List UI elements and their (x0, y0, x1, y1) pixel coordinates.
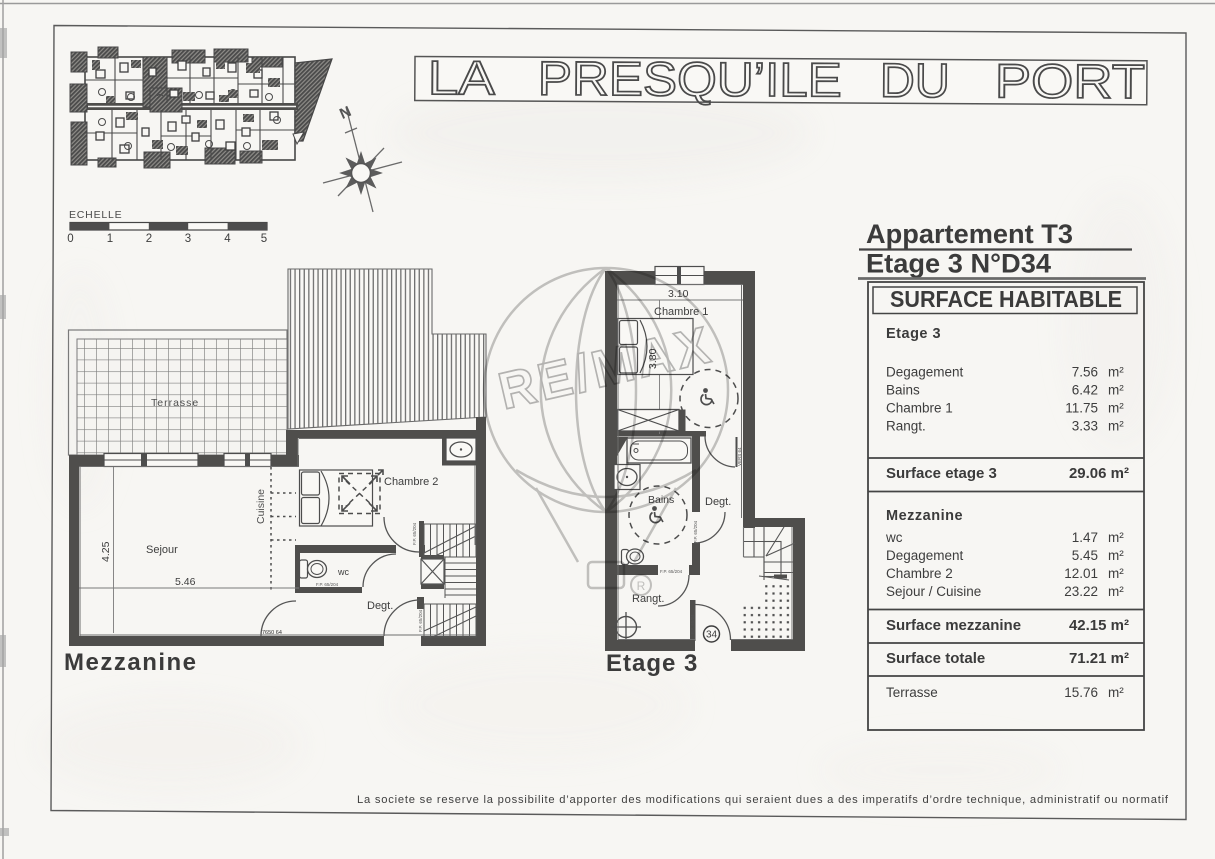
svg-text:m²: m² (1108, 530, 1124, 545)
svg-text:Terrasse: Terrasse (151, 397, 199, 409)
svg-text:3: 3 (185, 233, 191, 245)
svg-text:Degagement: Degagement (886, 548, 964, 563)
svg-text:11.75: 11.75 (1065, 401, 1098, 416)
svg-text:F.P. 65/04: F.P. 65/04 (690, 614, 695, 634)
svg-text:Bains: Bains (886, 383, 920, 398)
svg-text:Surface mezzanine: Surface mezzanine (886, 617, 1021, 634)
svg-text:Terrasse: Terrasse (886, 685, 938, 700)
svg-text:2: 2 (146, 233, 152, 245)
svg-text:Mezzanine: Mezzanine (886, 508, 963, 524)
svg-text:34: 34 (706, 630, 718, 641)
svg-text:wc: wc (337, 567, 349, 577)
svg-text:m²: m² (1108, 383, 1124, 398)
svg-text:5.45: 5.45 (1072, 548, 1098, 563)
svg-text:Surface etage 3: Surface etage 3 (886, 465, 997, 482)
svg-text:wc: wc (885, 530, 903, 545)
svg-text:R: R (637, 579, 646, 593)
svg-text:Surface totale: Surface totale (886, 650, 985, 667)
svg-text:71.21 m²: 71.21 m² (1069, 650, 1129, 667)
svg-text:SURFACE HABITABLE: SURFACE HABITABLE (890, 286, 1122, 312)
svg-text:LA: LA (428, 52, 495, 105)
svg-text:23.22: 23.22 (1064, 584, 1098, 599)
svg-text:Etage 3: Etage 3 (886, 326, 941, 342)
svg-text:Degagement: Degagement (886, 365, 964, 380)
svg-text:3.33: 3.33 (1072, 419, 1098, 434)
svg-text:Rangt.: Rangt. (886, 419, 926, 434)
svg-text:1: 1 (107, 233, 113, 245)
svg-text:DU: DU (880, 55, 950, 108)
svg-text:Chambre 2: Chambre 2 (384, 476, 438, 488)
svg-text:F.P. 65/204: F.P. 65/204 (693, 520, 698, 543)
svg-text:Sejour: Sejour (146, 544, 178, 556)
svg-text:ECHELLE: ECHELLE (69, 209, 122, 221)
svg-text:Sejour / Cuisine: Sejour / Cuisine (886, 584, 981, 599)
svg-text:5: 5 (261, 233, 267, 245)
svg-text:6.42: 6.42 (1072, 383, 1098, 398)
svg-text:Appartement T3: Appartement T3 (866, 219, 1073, 249)
svg-text:4: 4 (224, 233, 231, 245)
svg-text:Chambre 2: Chambre 2 (886, 566, 953, 581)
svg-text:Cuisine: Cuisine (255, 489, 267, 524)
svg-text:Chambre 1: Chambre 1 (886, 401, 953, 416)
svg-text:F.P. 65/204: F.P. 65/204 (412, 522, 417, 545)
svg-text:42.15 m²: 42.15 m² (1069, 617, 1129, 634)
svg-text:12.01: 12.01 (1064, 566, 1098, 581)
svg-text:m²: m² (1108, 401, 1124, 416)
svg-text:m²: m² (1108, 365, 1124, 380)
svg-text:m²: m² (1108, 685, 1124, 700)
svg-text:F.P. 65/204: F.P. 65/204 (660, 569, 683, 574)
svg-text:7.56: 7.56 (1072, 365, 1098, 380)
svg-text:15.76: 15.76 (1064, 685, 1098, 700)
svg-text:1.47: 1.47 (1072, 530, 1098, 545)
svg-text:Etage 3 N°D34: Etage 3 N°D34 (866, 249, 1051, 279)
svg-text:m²: m² (1108, 566, 1124, 581)
svg-text:m²: m² (1108, 548, 1124, 563)
svg-text:5.46: 5.46 (175, 576, 196, 588)
svg-text:PRESQU’ILE: PRESQU’ILE (538, 53, 842, 108)
svg-text:29.06 m²: 29.06 m² (1069, 465, 1129, 482)
svg-text:F.P. 65/204: F.P. 65/204 (316, 582, 339, 587)
svg-text:Degt.: Degt. (705, 496, 731, 508)
svg-text:PORT: PORT (995, 55, 1145, 109)
svg-text:F.P. 65/204: F.P. 65/204 (418, 609, 423, 632)
svg-text:4.25: 4.25 (100, 541, 112, 562)
svg-text:m²: m² (1108, 419, 1124, 434)
svg-text:La societe se reserve la possi: La societe se reserve la possibilite d’a… (357, 794, 1169, 806)
svg-text:Mezzanine: Mezzanine (64, 649, 198, 676)
svg-text:Degt.: Degt. (367, 600, 393, 612)
svg-text:Etage 3: Etage 3 (606, 650, 698, 677)
svg-text:m²: m² (1108, 584, 1124, 599)
svg-text:0: 0 (67, 233, 73, 245)
